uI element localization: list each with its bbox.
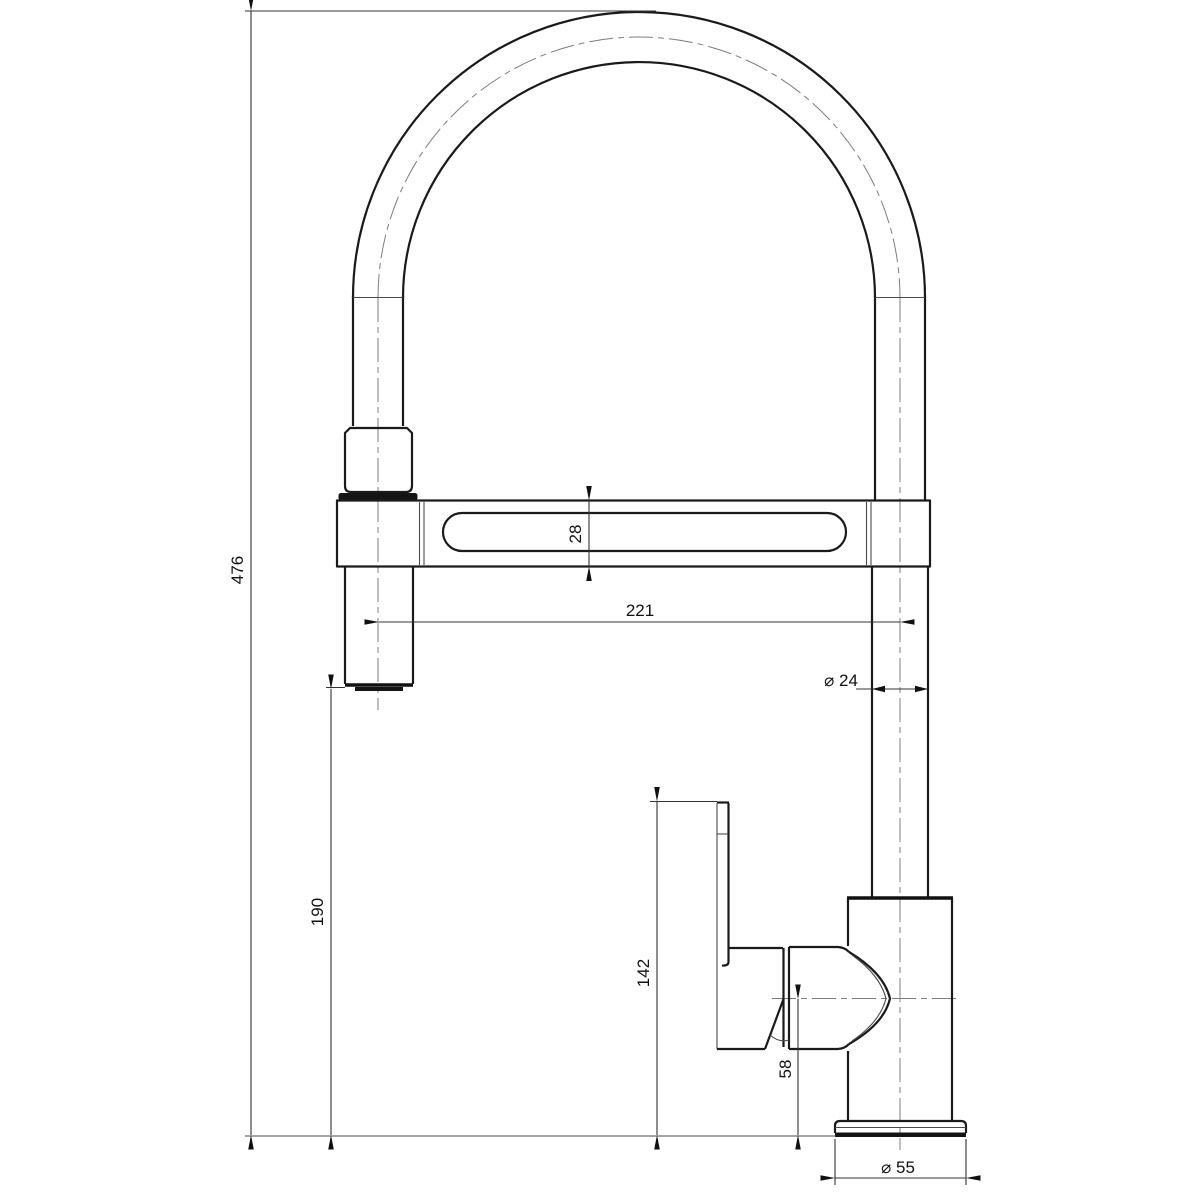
docking-ring bbox=[339, 493, 418, 501]
dim-label-spout-reach: 221 bbox=[626, 601, 654, 620]
dimension-spout-bar-height: 28 bbox=[566, 501, 589, 567]
dim-label-spray-outlet-clearance: 190 bbox=[308, 898, 327, 926]
dimension-handle-top-height: 142 bbox=[634, 802, 717, 1136]
dim-label-spout-bar-height: 28 bbox=[566, 525, 585, 544]
dimension-overall-height: 476 bbox=[228, 11, 656, 1135]
spray-outlet-tip bbox=[355, 687, 403, 691]
dim-label-riser-diameter: ⌀ 24 bbox=[824, 671, 858, 690]
technical-drawing-canvas: 476 28 221 ⌀ 24 190 142 58 ⌀ 55 bbox=[0, 0, 1200, 1200]
crossbar bbox=[337, 501, 930, 567]
dimension-spray-outlet-clearance: 190 bbox=[308, 688, 345, 1136]
spout-arc bbox=[353, 12, 925, 500]
dim-label-base-diameter: ⌀ 55 bbox=[881, 1158, 915, 1177]
faucet-outline bbox=[245, 12, 966, 1137]
faucet-dimension-drawing: 476 28 221 ⌀ 24 190 142 58 ⌀ 55 bbox=[0, 0, 1200, 1200]
dimension-valve-axis-height: 58 bbox=[776, 999, 798, 1135]
dim-label-valve-axis-height: 58 bbox=[776, 1060, 795, 1079]
dim-label-handle-top-height: 142 bbox=[634, 959, 653, 987]
dimension-riser-diameter: ⌀ 24 bbox=[824, 671, 928, 692]
handle-lever bbox=[717, 803, 789, 1050]
crossbar-slot bbox=[443, 513, 846, 551]
dim-label-overall-height: 476 bbox=[228, 556, 247, 584]
dimension-spout-reach: 221 bbox=[379, 601, 900, 622]
spout-arc-centerline bbox=[378, 37, 900, 298]
